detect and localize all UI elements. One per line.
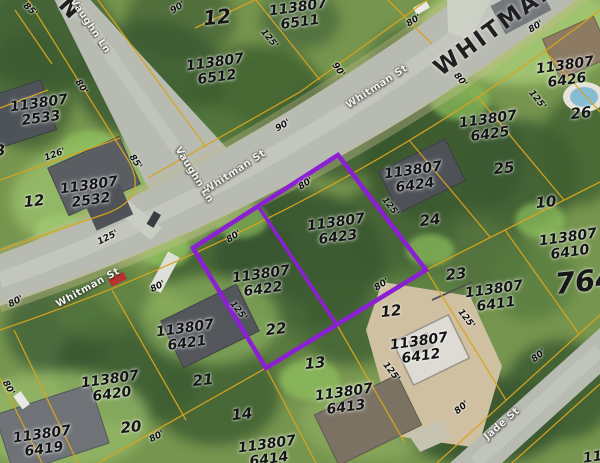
pool-6426 [570, 87, 598, 107]
aerial-map-graphics [0, 0, 600, 463]
map-canvas[interactable]: 1138076511113807651211380725331138072532… [0, 0, 600, 463]
